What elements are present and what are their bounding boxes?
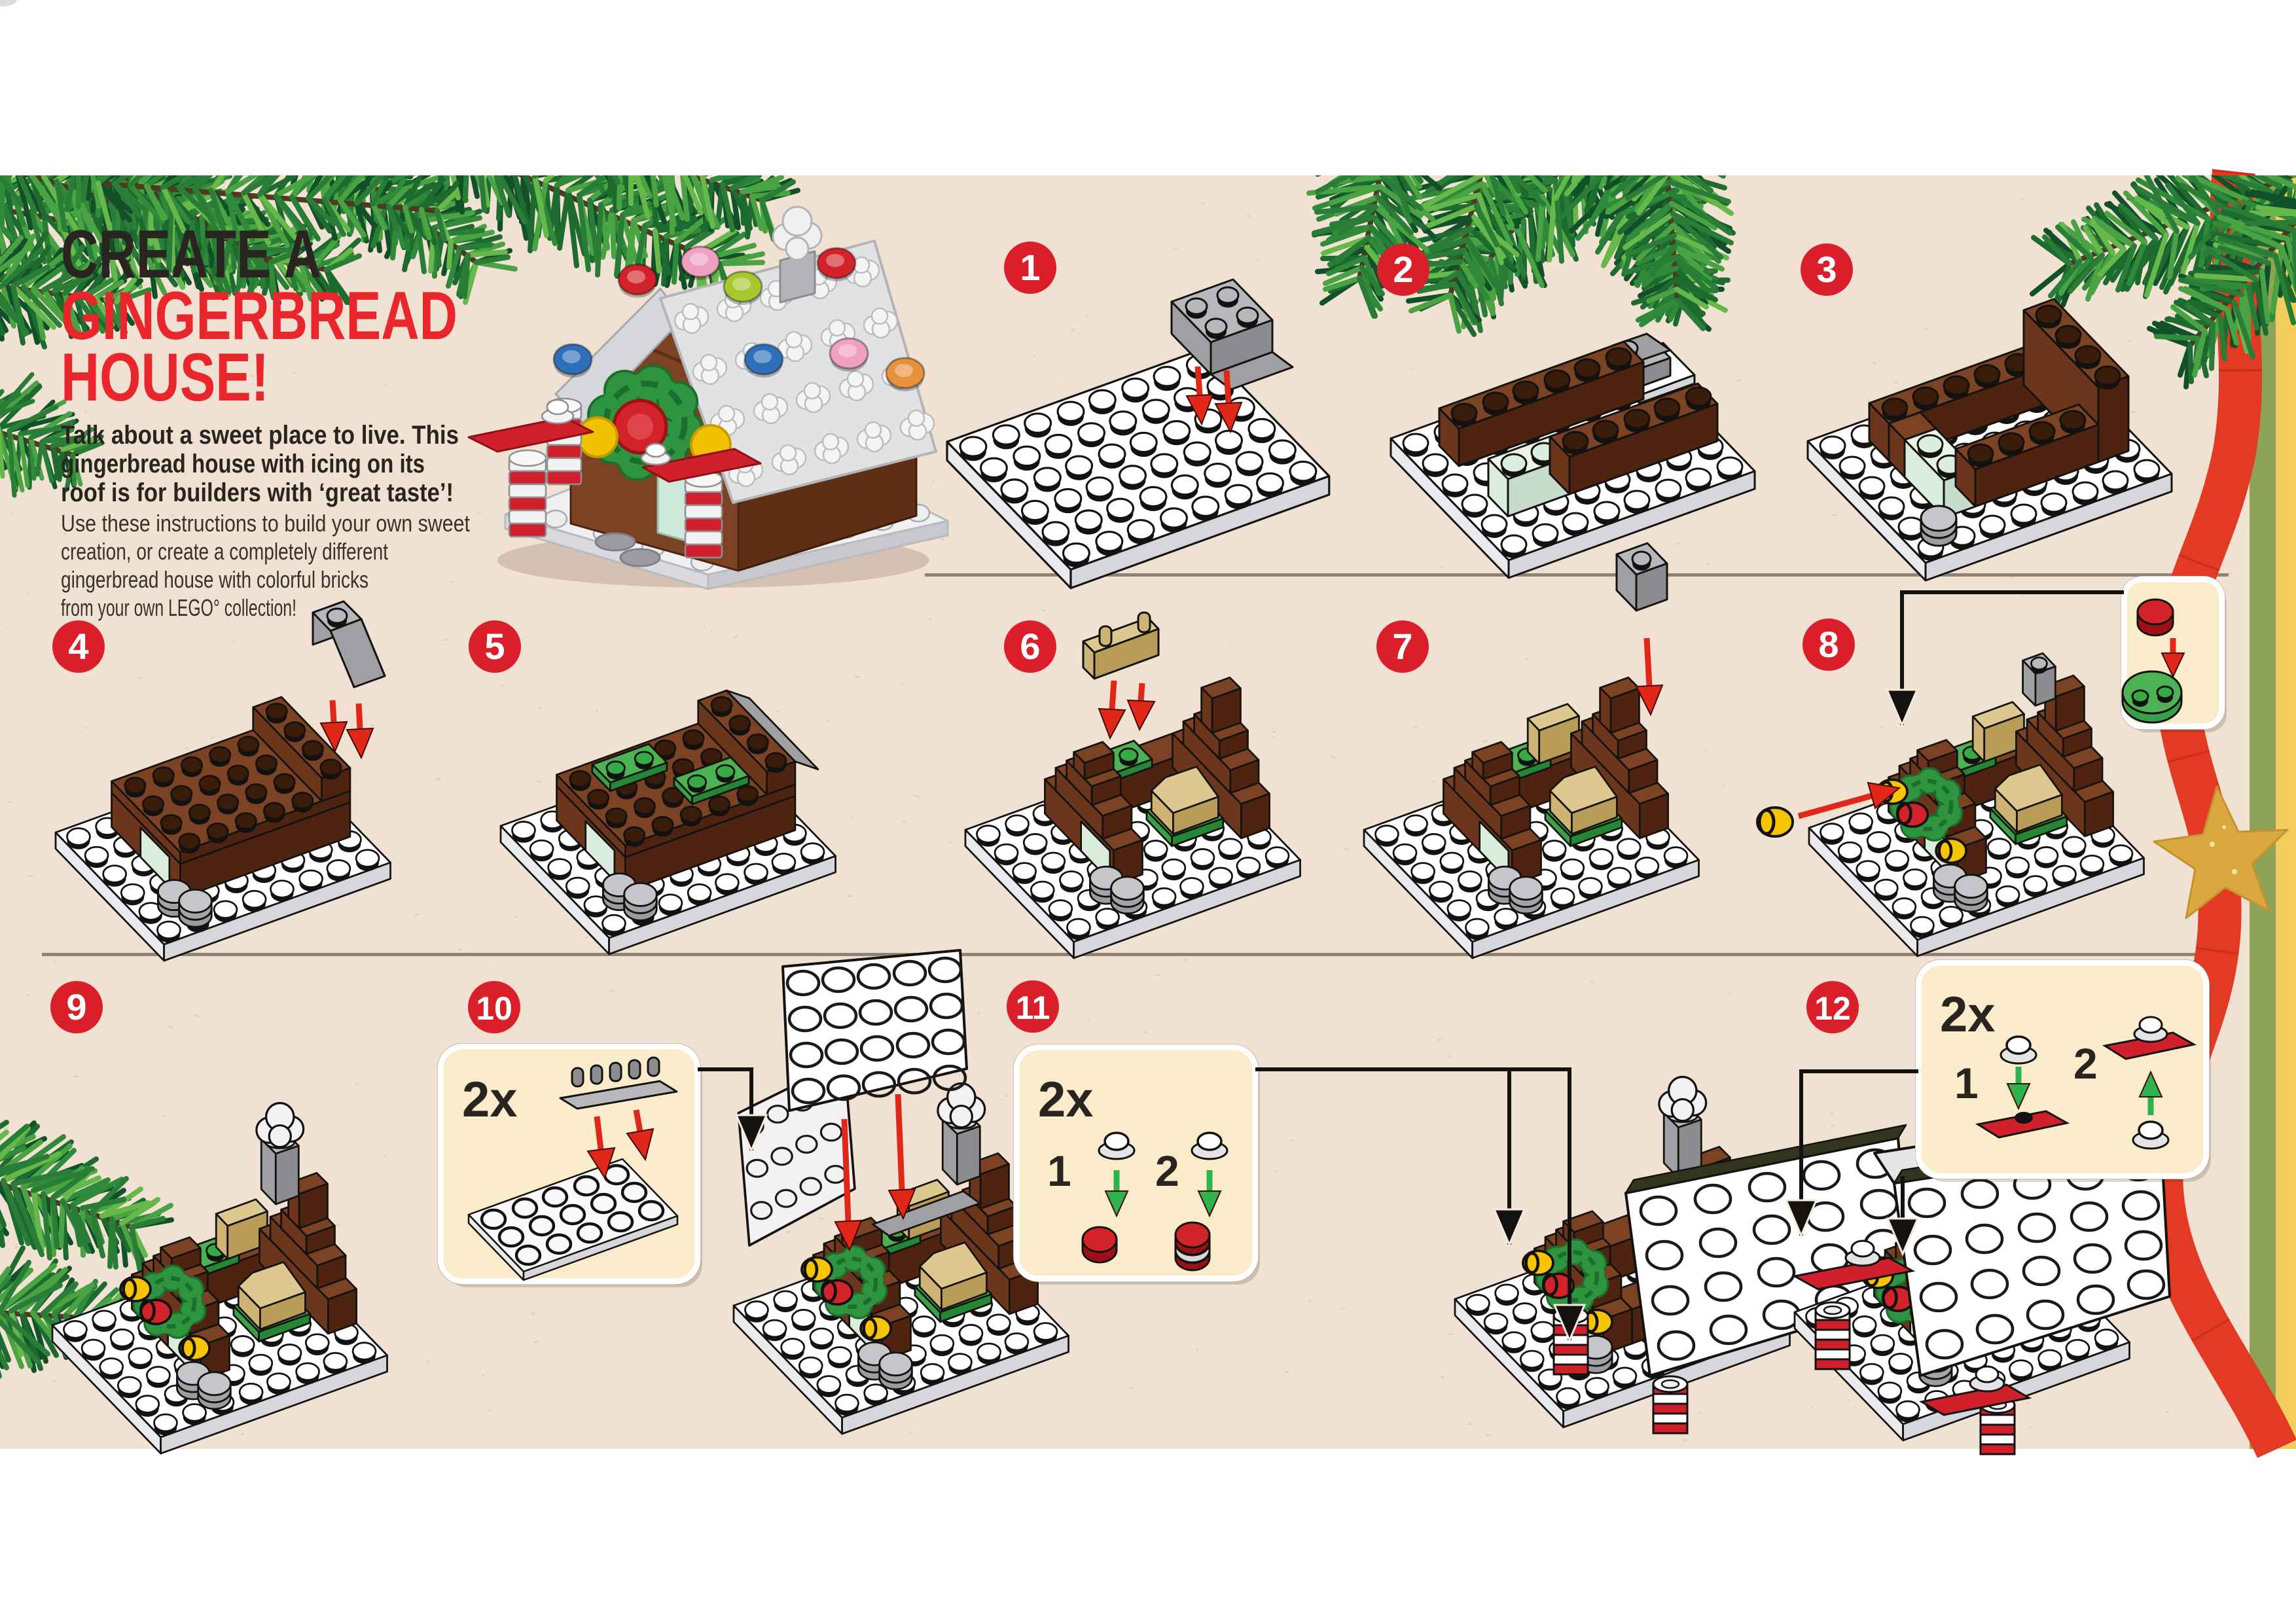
svg-text:7: 7 — [1392, 626, 1412, 667]
svg-text:5: 5 — [484, 626, 505, 667]
svg-text:6: 6 — [1020, 626, 1040, 667]
svg-text:2: 2 — [1393, 249, 1413, 290]
svg-text:1: 1 — [1954, 1059, 1979, 1107]
svg-text:Use these instructions to buil: Use these instructions to build your own… — [61, 510, 470, 537]
svg-text:creation, or create a complete: creation, or create a completely differe… — [61, 538, 388, 565]
svg-text:12: 12 — [1814, 990, 1851, 1027]
svg-text:2x: 2x — [1038, 1072, 1094, 1128]
svg-text:2: 2 — [2073, 1039, 2098, 1088]
svg-text:HOUSE!: HOUSE! — [61, 340, 269, 416]
svg-text:1: 1 — [1047, 1147, 1071, 1195]
svg-text:8: 8 — [1818, 624, 1839, 665]
svg-text:gingerbread house with colorfu: gingerbread house with colorful bricks — [61, 566, 368, 593]
svg-text:3: 3 — [1816, 249, 1837, 290]
svg-text:roof is for builders with ‘gre: roof is for builders with ‘great taste’! — [61, 478, 454, 507]
svg-text:4: 4 — [68, 626, 88, 667]
svg-text:11: 11 — [1016, 990, 1050, 1026]
svg-text:Talk about a sweet place to li: Talk about a sweet place to live. This — [61, 421, 459, 450]
svg-text:1: 1 — [1020, 247, 1040, 288]
svg-text:2: 2 — [1155, 1147, 1179, 1195]
svg-text:2x: 2x — [462, 1072, 518, 1128]
svg-text:2x: 2x — [1940, 987, 1996, 1043]
svg-text:9: 9 — [66, 986, 86, 1027]
svg-text:from your own LEGO° collection: from your own LEGO° collection! — [61, 594, 296, 621]
svg-text:10: 10 — [476, 990, 512, 1027]
svg-text:gingerbread house with icing o: gingerbread house with icing on its — [61, 450, 425, 478]
